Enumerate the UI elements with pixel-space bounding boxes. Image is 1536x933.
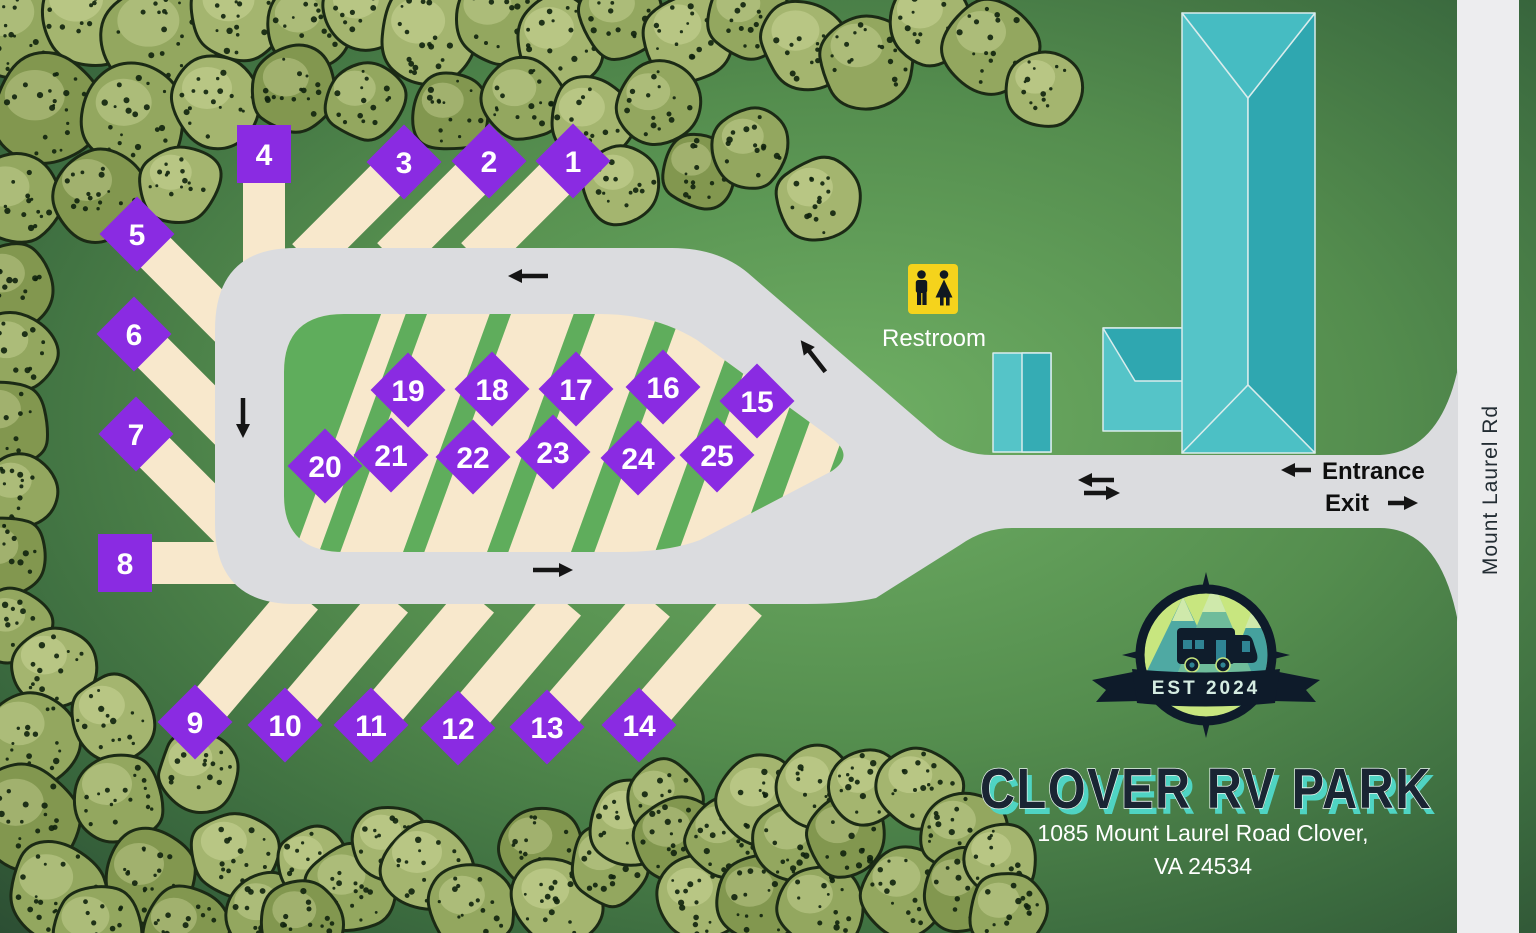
site-number: 8 xyxy=(117,548,134,581)
main-building xyxy=(1182,13,1315,453)
site-number: 10 xyxy=(268,710,301,743)
site-marker-8: 8 xyxy=(98,534,152,592)
site-number: 23 xyxy=(536,437,569,470)
site-marker-4: 4 xyxy=(237,125,291,183)
tree xyxy=(1006,52,1082,126)
site-number: 21 xyxy=(374,440,407,473)
site-number: 17 xyxy=(559,374,592,407)
restroom-label: Restroom xyxy=(882,325,986,352)
site-number: 6 xyxy=(126,319,143,352)
site-number: 11 xyxy=(355,710,387,743)
site-number: 25 xyxy=(700,440,733,473)
rv-park-map-screenshot: 1234567891011121314151617181920212223242… xyxy=(0,0,1536,933)
site-number: 14 xyxy=(622,710,656,743)
tree xyxy=(712,108,788,188)
park-title: CLOVER RV PARK xyxy=(980,757,1432,821)
restroom-sign-icon xyxy=(908,264,958,314)
site-number: 7 xyxy=(128,419,145,452)
address-line-1: 1085 Mount Laurel Road Clover, xyxy=(1037,820,1368,846)
site-number: 2 xyxy=(481,146,498,179)
site-number: 15 xyxy=(740,386,773,419)
site-number: 22 xyxy=(456,442,489,475)
site-number: 5 xyxy=(129,219,146,252)
l-wing-building xyxy=(1103,328,1183,431)
address-line-2: VA 24534 xyxy=(1154,853,1252,879)
site-number: 9 xyxy=(187,707,204,740)
site-number: 3 xyxy=(396,147,413,180)
small-building xyxy=(993,353,1051,452)
est-banner: EST 2024 xyxy=(1092,669,1320,707)
site-number: 16 xyxy=(646,372,679,405)
site-number: 12 xyxy=(441,713,474,746)
site-number: 13 xyxy=(530,712,563,745)
road-name-label: Mount Laurel Rd xyxy=(1479,405,1502,575)
park-map: 1234567891011121314151617181920212223242… xyxy=(0,0,1536,933)
site-number: 20 xyxy=(308,451,341,484)
tree xyxy=(970,874,1047,933)
est-year-label: EST 2024 xyxy=(1152,678,1261,699)
tree xyxy=(428,865,513,933)
entrance-label: Entrance xyxy=(1322,458,1425,485)
site-number: 19 xyxy=(391,375,424,408)
site-number: 24 xyxy=(621,443,655,476)
tree xyxy=(252,45,335,132)
site-number: 1 xyxy=(565,146,582,179)
site-number: 4 xyxy=(256,139,273,172)
exit-label: Exit xyxy=(1325,490,1369,517)
site-number: 18 xyxy=(475,374,508,407)
